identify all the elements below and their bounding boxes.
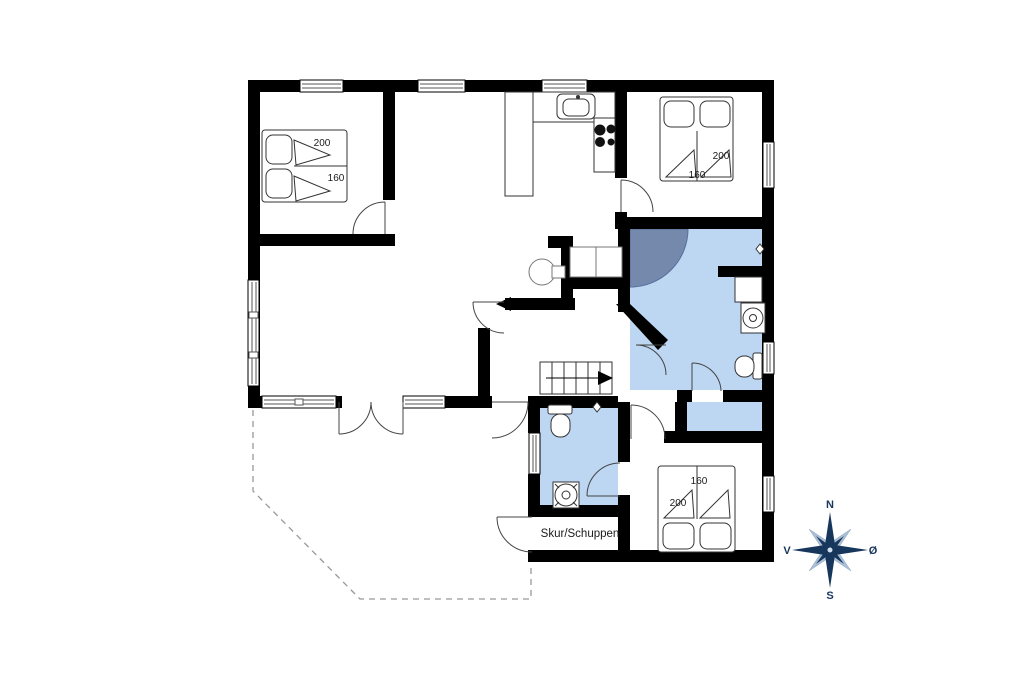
wall-bedroom1-east xyxy=(383,92,395,200)
wall-hall-stub xyxy=(478,328,490,408)
stairs xyxy=(540,362,613,394)
bed3-width-label: 160 xyxy=(691,476,708,487)
terrace-outline xyxy=(253,410,531,599)
kitchen xyxy=(505,92,616,196)
bathroom1-counter xyxy=(735,277,762,302)
wall-closet-stub xyxy=(548,236,561,248)
window-west-living xyxy=(248,280,259,386)
kitchen-sink xyxy=(557,94,595,119)
floor-drain xyxy=(553,482,579,508)
bed2-length-label: 200 xyxy=(713,151,730,162)
wall-bathroom1-lower-west xyxy=(675,402,687,433)
bed1-width-label: 160 xyxy=(328,173,345,184)
bed-bedroom1 xyxy=(262,130,347,202)
wall-end-marker xyxy=(496,297,511,311)
wall-bedroom3-west-a xyxy=(618,402,630,462)
wall-extension-west-a xyxy=(528,396,540,433)
window-north-2 xyxy=(418,80,465,92)
compass-south-label: S xyxy=(826,590,833,602)
shed-label: Skur/Schuppen xyxy=(541,528,620,540)
window-east-bedroom2 xyxy=(763,142,774,188)
window-east-bedroom3 xyxy=(763,476,774,512)
window-north-3 xyxy=(542,80,587,92)
toilet-bathroom1 xyxy=(735,353,762,379)
compass-hub-center xyxy=(828,548,833,553)
pillow xyxy=(266,135,292,164)
door-bedroom3 xyxy=(631,405,665,439)
compass-rose: N S V Ø xyxy=(783,499,877,602)
door-bedroom2 xyxy=(621,180,653,212)
wall-bathroom1-partition-b xyxy=(723,390,762,402)
wall-bathroom1-partition-a xyxy=(677,390,692,402)
water-heater xyxy=(529,259,555,285)
floor-plan-canvas: 200 160 200 160 200 160 Skur/Schuppen N … xyxy=(0,0,1024,682)
wall-kitchen-east xyxy=(615,92,627,178)
door-terrace-french xyxy=(339,402,403,434)
wall-bedroom1-south xyxy=(248,234,395,246)
wall-bedroom2-south xyxy=(615,217,762,229)
door-entrance xyxy=(492,402,528,438)
door-shed xyxy=(497,517,532,552)
toilet-bathroom2 xyxy=(548,405,572,437)
washing-machine xyxy=(741,303,765,333)
wall-bedroom3-west-b xyxy=(618,495,630,553)
compass-west-label: V xyxy=(783,545,791,557)
window-south-2 xyxy=(403,396,445,408)
kitchen-counter-vertical xyxy=(505,92,533,196)
window-west-bathroom2 xyxy=(529,433,540,474)
pillow xyxy=(663,523,694,549)
compass-north-label: N xyxy=(826,499,834,511)
window-south-1 xyxy=(262,396,336,408)
wall-bathroom1-stub xyxy=(718,266,762,277)
floor-plan: 200 160 200 160 200 160 Skur/Schuppen N … xyxy=(0,0,1024,682)
pillow xyxy=(664,101,694,127)
pillow xyxy=(700,523,731,549)
wall-hall-north xyxy=(505,298,575,310)
door-bedroom1 xyxy=(353,202,385,234)
bathroom-1-floor-lower xyxy=(677,402,762,431)
water-heater-connector xyxy=(552,266,565,278)
bed2-width-label: 160 xyxy=(689,170,706,181)
window-east-bathroom1 xyxy=(763,342,774,374)
bed3-length-label: 200 xyxy=(670,498,687,509)
bed1-length-label: 200 xyxy=(314,138,331,149)
wall-south-extension xyxy=(528,550,774,562)
window-north-1 xyxy=(300,80,343,92)
pillow xyxy=(700,101,730,127)
compass-east-label: Ø xyxy=(869,545,878,557)
pillow xyxy=(266,169,292,198)
wall-bedroom3-north xyxy=(664,431,762,443)
bed-bedroom2 xyxy=(660,97,733,181)
